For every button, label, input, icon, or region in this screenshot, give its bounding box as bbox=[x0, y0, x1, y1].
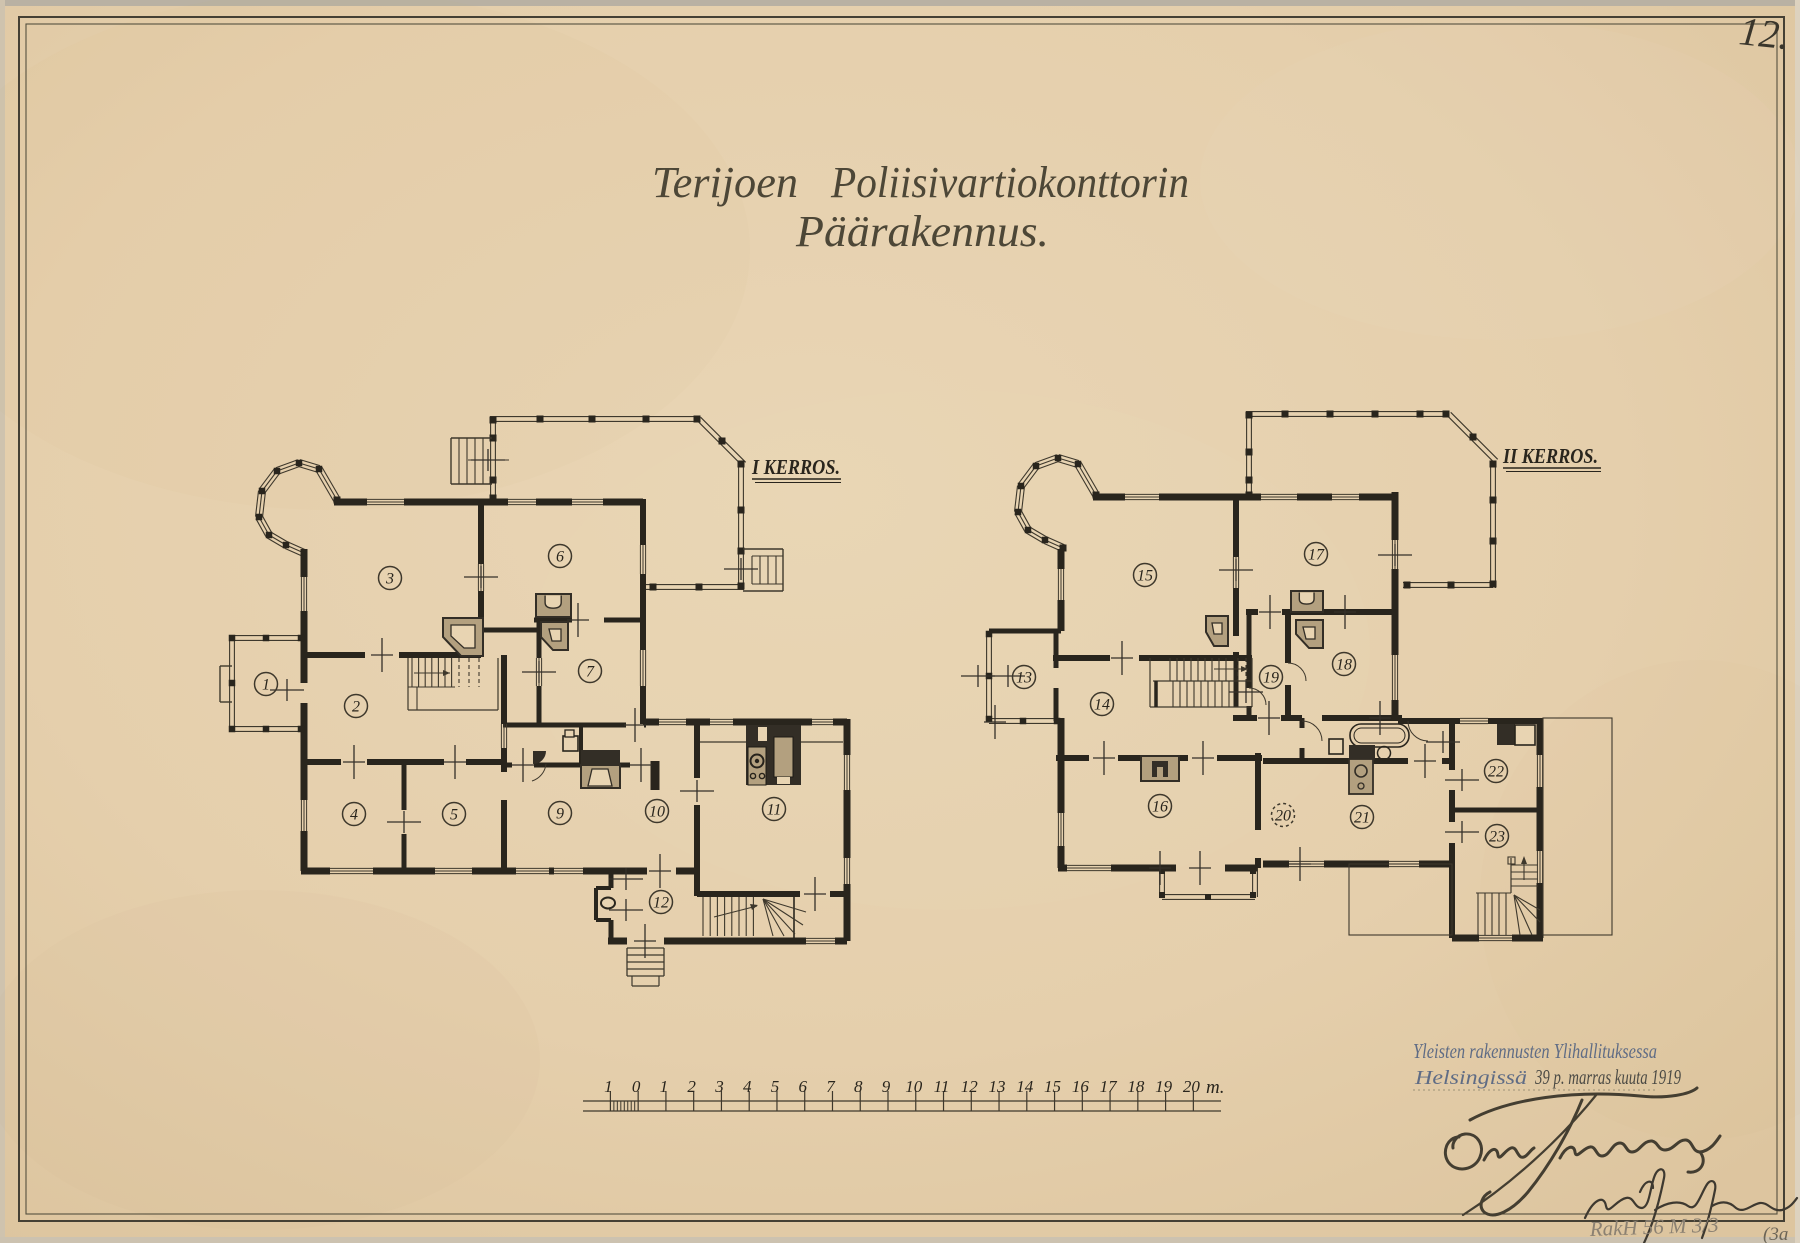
svg-text:12: 12 bbox=[961, 1077, 979, 1096]
svg-text:II KERROS.: II KERROS. bbox=[1502, 444, 1598, 468]
svg-text:12: 12 bbox=[653, 895, 669, 912]
svg-text:14: 14 bbox=[1016, 1077, 1034, 1096]
svg-text:20: 20 bbox=[1275, 808, 1291, 825]
svg-text:20: 20 bbox=[1183, 1077, 1201, 1096]
svg-text:7: 7 bbox=[826, 1077, 836, 1096]
svg-text:17: 17 bbox=[1100, 1077, 1119, 1096]
svg-text:1: 1 bbox=[660, 1077, 669, 1096]
svg-text:9: 9 bbox=[556, 806, 564, 823]
svg-text:14: 14 bbox=[1094, 697, 1110, 714]
svg-text:0: 0 bbox=[632, 1077, 641, 1096]
svg-text:10: 10 bbox=[649, 804, 665, 821]
svg-text:13: 13 bbox=[1016, 670, 1032, 687]
svg-text:23: 23 bbox=[1489, 829, 1505, 846]
svg-text:m.: m. bbox=[1206, 1077, 1224, 1098]
svg-text:6: 6 bbox=[556, 549, 564, 566]
svg-text:I KERROS.: I KERROS. bbox=[751, 455, 840, 479]
svg-text:13: 13 bbox=[989, 1077, 1006, 1096]
svg-text:RakH 56 M 3/3: RakH 56 M 3/3 bbox=[1588, 1213, 1719, 1242]
svg-text:12.: 12. bbox=[1737, 8, 1791, 58]
svg-text:10: 10 bbox=[905, 1077, 923, 1096]
svg-text:5: 5 bbox=[771, 1077, 780, 1096]
svg-text:11: 11 bbox=[934, 1077, 950, 1096]
svg-text:4: 4 bbox=[350, 807, 358, 824]
svg-text:3: 3 bbox=[714, 1077, 724, 1096]
svg-text:9: 9 bbox=[882, 1077, 891, 1096]
svg-text:21: 21 bbox=[1354, 810, 1370, 827]
svg-text:Terijoen: Terijoen bbox=[652, 158, 798, 207]
svg-text:16: 16 bbox=[1152, 799, 1168, 816]
svg-text:3: 3 bbox=[385, 571, 394, 588]
svg-text:18: 18 bbox=[1127, 1077, 1145, 1096]
svg-text:Päärakennus.: Päärakennus. bbox=[795, 207, 1049, 256]
svg-text:4: 4 bbox=[743, 1077, 752, 1096]
svg-text:15: 15 bbox=[1044, 1077, 1061, 1096]
svg-text:2: 2 bbox=[687, 1077, 696, 1096]
svg-text:22: 22 bbox=[1488, 764, 1504, 781]
svg-text:7: 7 bbox=[586, 664, 595, 681]
svg-text:17: 17 bbox=[1308, 547, 1325, 564]
svg-text:6: 6 bbox=[798, 1077, 807, 1096]
svg-text:8: 8 bbox=[854, 1077, 863, 1096]
svg-text:1: 1 bbox=[262, 677, 270, 694]
svg-text:Yleisten rakennusten Ylihallit: Yleisten rakennusten Ylihallituksessa bbox=[1413, 1039, 1657, 1063]
svg-text:Helsingissä: Helsingissä bbox=[1414, 1067, 1527, 1089]
svg-text:19: 19 bbox=[1155, 1077, 1173, 1096]
svg-text:Poliisivartiokonttorin: Poliisivartiokonttorin bbox=[830, 158, 1189, 207]
svg-text:39 p. marras kuuta 1919: 39 p. marras kuuta 1919 bbox=[1534, 1065, 1681, 1089]
svg-text:(3a: (3a bbox=[1763, 1224, 1788, 1243]
svg-text:18: 18 bbox=[1336, 657, 1352, 674]
svg-text:19: 19 bbox=[1263, 670, 1279, 687]
svg-text:16: 16 bbox=[1072, 1077, 1090, 1096]
svg-text:11: 11 bbox=[767, 802, 782, 819]
svg-text:15: 15 bbox=[1137, 568, 1153, 585]
svg-text:1: 1 bbox=[604, 1077, 613, 1096]
svg-text:2: 2 bbox=[352, 699, 360, 716]
svg-text:5: 5 bbox=[450, 807, 458, 824]
